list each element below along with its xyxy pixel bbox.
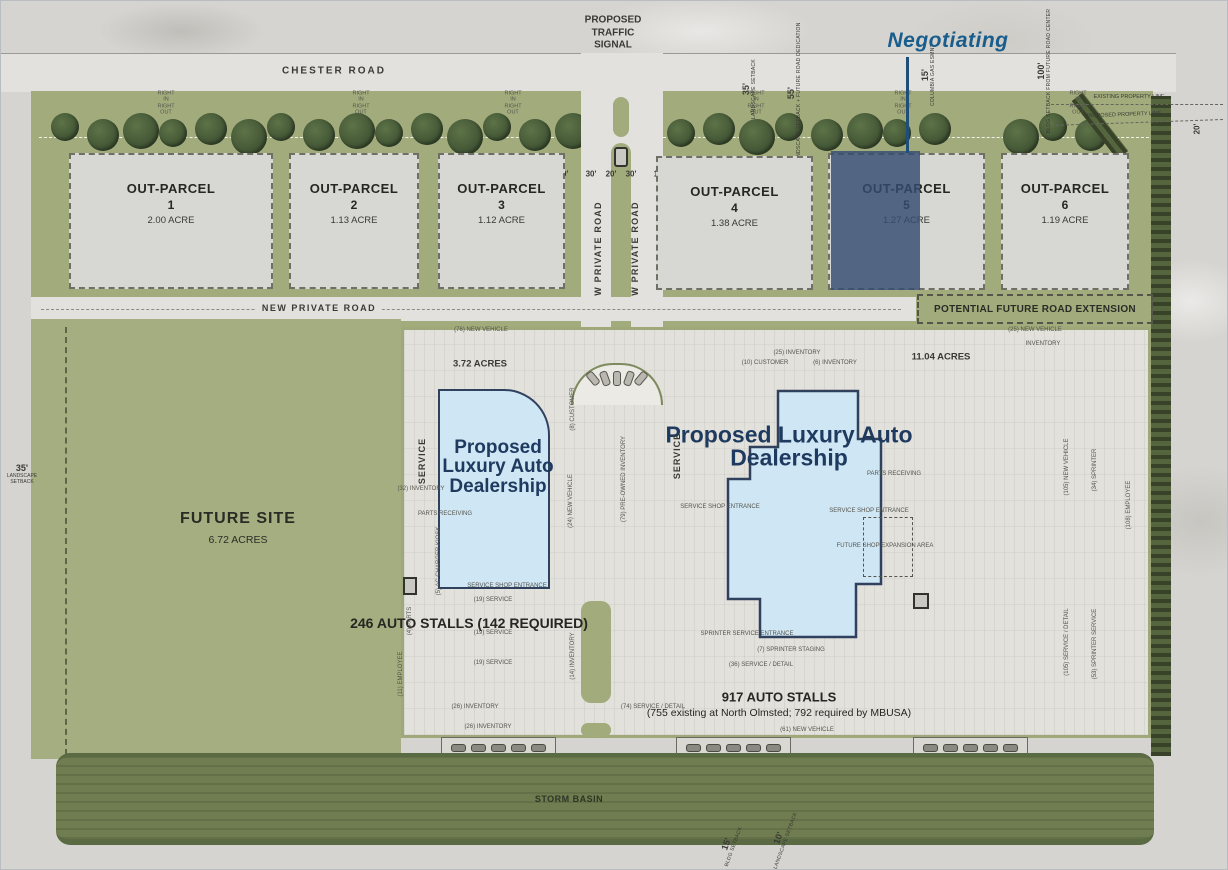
- parking-label: (34) SPRINTER: [1092, 449, 1098, 492]
- car-icon: [471, 744, 486, 752]
- monument-sign: [614, 147, 628, 167]
- tree-icon: [123, 113, 159, 149]
- car-icon: [943, 744, 958, 752]
- parking-label: PARTS RECEIVING: [867, 471, 921, 477]
- west-campus-acreage: 3.72 ACRES: [453, 359, 507, 370]
- road-dimension-label: 30': [626, 170, 637, 179]
- parking-label: (108) EMPLOYEE: [1126, 481, 1132, 530]
- tree-icon: [519, 119, 551, 151]
- out-parcel-1: OUT-PARCEL 1 2.00 ACRE: [69, 153, 273, 289]
- tree-icon: [919, 113, 951, 145]
- setback-55: 55'LANDSCAPE SETBACK + FUTURE ROAD DEDIC…: [786, 22, 802, 163]
- parking-label: (32) INVENTORY: [397, 486, 444, 492]
- site-plan: PROPOSED TRAFFIC SIGNAL CHESTER ROAD EXI…: [0, 0, 1228, 870]
- car-icon: [706, 744, 721, 752]
- parking-label: (6) INVENTORY: [813, 360, 857, 366]
- parking-label: (53) SPRINTER SERVICE: [1092, 609, 1098, 680]
- car-icon: [623, 370, 636, 387]
- parking-label: FUTURE SHOP EXPANSION AREA: [837, 543, 934, 549]
- setback-15: 15'COLUMBIA GAS ESMNT: [920, 44, 936, 106]
- out-parcel-3: OUT-PARCEL 3 1.12 ACRE: [438, 153, 565, 289]
- car-icon: [963, 744, 978, 752]
- car-icon: [531, 744, 546, 752]
- future-site-name: FUTURE SITE: [180, 510, 296, 528]
- car-icon: [746, 744, 761, 752]
- tree-icon: [267, 113, 295, 141]
- car-icon: [633, 370, 649, 387]
- setback-100: 100'BLDG SETBACK FROM FUTURE ROAD CENTER: [1036, 9, 1052, 134]
- negotiating-callout: Negotiating: [888, 29, 1009, 53]
- tree-icon: [87, 119, 119, 151]
- parking-label: (8) CUSTOMER: [570, 387, 576, 430]
- parking-label: SERVICE SHOP ENTRANCE: [680, 504, 759, 510]
- car-icon: [613, 371, 621, 386]
- parking-label: (61) NEW VEHICLE: [780, 727, 834, 733]
- tree-icon: [1003, 119, 1039, 155]
- parking-label: (105) NEW VEHICLE: [1064, 438, 1070, 495]
- car-icon: [983, 744, 998, 752]
- tree-icon: [303, 119, 335, 151]
- car-icon: [451, 744, 466, 752]
- new-private-road-label-west: NEW PRIVATE ROAD: [593, 201, 603, 310]
- driveway-label: RIGHT INRIGHT OUT: [157, 90, 174, 115]
- existing-property-line-label: EXISTING PROPERTY LINE: [1093, 94, 1164, 100]
- car-icon: [599, 370, 612, 387]
- negotiating-callout-line: [906, 57, 909, 153]
- parking-label: (10) CUSTOMER: [742, 360, 789, 366]
- parking-label: (26) INVENTORY: [451, 704, 498, 710]
- future-road-extension-label: POTENTIAL FUTURE ROAD EXTENSION: [934, 304, 1136, 315]
- tree-icon: [703, 113, 735, 145]
- parking-label: (105) SERVICE / DETAIL: [1064, 608, 1070, 675]
- parking-label: (7) SPRINTER STAGING: [757, 647, 825, 653]
- tree-icon: [483, 113, 511, 141]
- future-site-acreage: 6.72 ACRES: [209, 534, 268, 546]
- east-campus-acreage: 11.04 ACRES: [912, 352, 971, 363]
- east-service-label: SERVICE: [672, 433, 682, 479]
- driveway-label: RIGHT INRIGHT OUT: [504, 90, 521, 115]
- parking-label: (24) NEW VEHICLE: [568, 474, 574, 528]
- driveway-label: RIGHT INRIGHT OUT: [747, 90, 764, 115]
- tree-icon: [51, 113, 79, 141]
- east-stall-count: 917 AUTO STALLS: [722, 690, 837, 705]
- hedge-east: [1151, 96, 1171, 756]
- tree-icon: [447, 119, 483, 155]
- parking-label: PARTS RECEIVING: [418, 511, 472, 517]
- right-dim-label: 20': [1193, 124, 1202, 135]
- out-parcel-2: OUT-PARCEL 2 1.13 ACRE: [289, 153, 419, 289]
- trash-enclosure: [913, 593, 929, 609]
- parking-label: SPRINTER SERVICE ENTRANCE: [701, 631, 794, 637]
- car-icon: [686, 744, 701, 752]
- road-centerline: [41, 309, 901, 310]
- driveway-label: RIGHT INRIGHT OUT: [352, 90, 369, 115]
- parking-label: (76) NEW VEHICLE: [454, 327, 508, 333]
- parking-label: INVENTORY: [1026, 341, 1061, 347]
- road-median-upper: [613, 97, 629, 137]
- traffic-signal-label: PROPOSED TRAFFIC SIGNAL: [576, 14, 650, 52]
- parking-label: (19) SERVICE: [474, 660, 513, 666]
- parking-label: (25) NEW VEHICLE: [1008, 327, 1062, 333]
- east-dealership-label: Proposed Luxury Auto Dealership: [664, 424, 914, 471]
- car-icon: [491, 744, 506, 752]
- tree-icon: [195, 113, 227, 145]
- car-icon: [1003, 744, 1018, 752]
- out-parcel-4: OUT-PARCEL 4 1.38 ACRE: [656, 156, 813, 290]
- parking-label: (4) PARTS: [407, 607, 413, 635]
- new-private-road-label-east: NEW PRIVATE ROAD: [630, 201, 640, 310]
- east-stall-note: (755 existing at North Olmsted; 792 requ…: [647, 707, 911, 719]
- driveway-label: RIGHT INRIGHT OUT: [1069, 90, 1086, 115]
- parking-label: SERVICE SHOP ENTRANCE: [467, 583, 546, 589]
- road-dimension-label: 30': [586, 170, 597, 179]
- parking-label: (25) INVENTORY: [773, 350, 820, 356]
- new-private-road-label-horizontal: NEW PRIVATE ROAD: [256, 303, 382, 313]
- parking-label: (74) SERVICE / DETAIL: [621, 704, 685, 710]
- storm-basin-label: STORM BASIN: [535, 794, 603, 804]
- tree-icon: [411, 113, 443, 145]
- parking-label: (36) SERVICE / DETAIL: [729, 662, 793, 668]
- west-stall-count: 246 AUTO STALLS (142 REQUIRED): [350, 615, 588, 631]
- tree-icon: [159, 119, 187, 147]
- tree-icon: [339, 113, 375, 149]
- trash-enclosure: [403, 577, 417, 595]
- parking-label: (26) INVENTORY: [464, 724, 511, 730]
- west-dealership-label: Proposed Luxury Auto Dealership: [432, 438, 564, 496]
- parking-label: (79) PRE-OWNED INVENTORY: [621, 436, 627, 522]
- car-icon: [766, 744, 781, 752]
- tree-icon: [811, 119, 843, 151]
- parking-island: [581, 723, 611, 737]
- tree-icon: [739, 119, 775, 155]
- parking-label: (11) EMPLOYEE: [398, 652, 404, 697]
- tree-icon: [375, 119, 403, 147]
- tree-icon: [231, 119, 267, 155]
- road-dimension-label: 20': [606, 170, 617, 179]
- car-icon: [511, 744, 526, 752]
- out-parcel-6: OUT-PARCEL 6 1.19 ACRE: [1001, 153, 1129, 290]
- future-site-setback-line: [65, 327, 67, 755]
- car-icon: [726, 744, 741, 752]
- parking-label: (5) AC CHARGER KIOSK: [436, 527, 442, 596]
- left-setback: 35' LANDSCAPE SETBACK: [5, 463, 39, 485]
- tree-icon: [667, 119, 695, 147]
- future-road-extension-box: POTENTIAL FUTURE ROAD EXTENSION: [917, 294, 1153, 324]
- parking-label: (19) SERVICE: [474, 630, 513, 636]
- west-service-label: SERVICE: [417, 438, 427, 484]
- car-icon: [923, 744, 938, 752]
- parking-label: SERVICE SHOP ENTRANCE: [829, 508, 908, 514]
- chester-road-label: CHESTER ROAD: [282, 66, 386, 77]
- parking-label: (19) SERVICE: [474, 597, 513, 603]
- storm-basin-area: [56, 753, 1154, 845]
- parking-label: (14) INVENTORY: [570, 632, 576, 679]
- tree-icon: [847, 113, 883, 149]
- parcel-5-highlight-overlay: [831, 151, 920, 290]
